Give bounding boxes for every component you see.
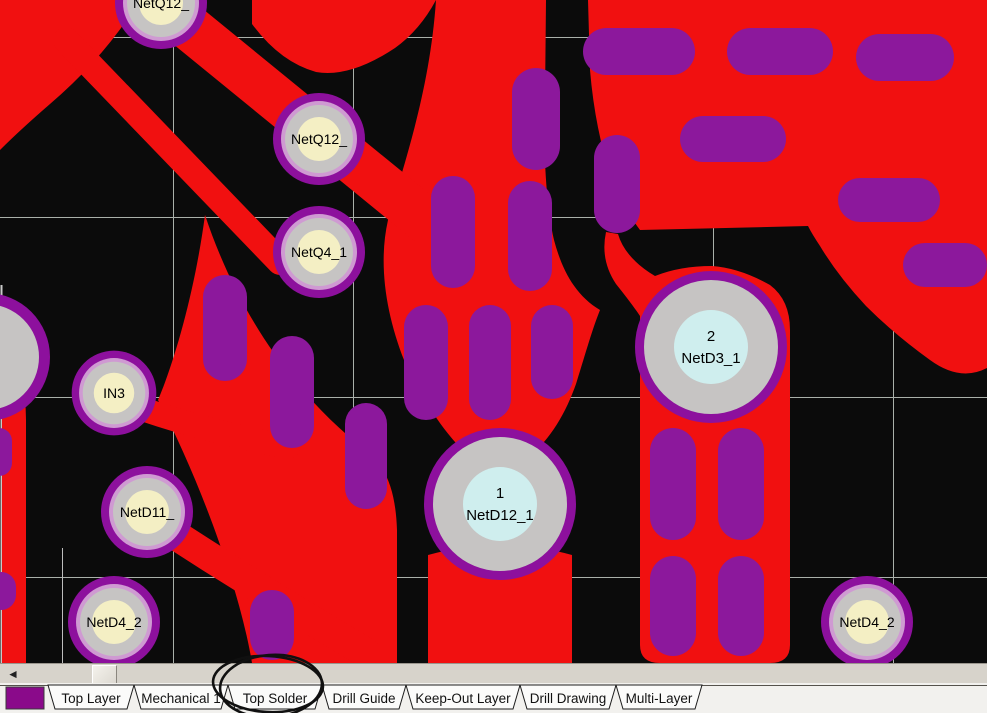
pad-net-label: NetQ12_ — [291, 131, 347, 147]
tab-label: Top Layer — [61, 691, 121, 706]
mask-pad-pill[interactable] — [345, 403, 387, 509]
pad-net-label: NetD12_1 — [466, 507, 534, 524]
tab-label: Keep-Out Layer — [415, 691, 511, 706]
mask-pad-pill[interactable] — [583, 28, 695, 75]
scrollbar-left-arrow-icon[interactable]: ◄ — [6, 667, 20, 681]
tab-top-layer[interactable]: Top Layer — [48, 685, 134, 709]
mask-pad-pill[interactable] — [856, 34, 954, 81]
tab-drill-guide[interactable]: Drill Guide — [322, 685, 406, 709]
pcb-editor-window: NetQ12_NetQ12_NetQ4_1IN3NetD11_NetD4_2Ne… — [0, 0, 987, 713]
mask-pad-pill[interactable] — [431, 176, 475, 288]
pad-hole — [463, 467, 537, 541]
mask-pad-pill[interactable] — [404, 305, 448, 420]
pad-NetD12_1[interactable]: 1NetD12_1 — [424, 428, 576, 580]
mask-pad-pill[interactable] — [727, 28, 833, 75]
layer-tabs: Top LayerMechanical 1Top SolderDrill Gui… — [0, 683, 987, 713]
tab-label: Drill Drawing — [530, 691, 607, 706]
active-layer-color-swatch[interactable] — [6, 687, 44, 709]
mask-pad-pill[interactable] — [838, 178, 940, 222]
tab-top-solder[interactable]: Top Solder — [228, 685, 322, 709]
pad-net-label: NetD11_ — [120, 504, 174, 520]
mask-pad-pill[interactable] — [650, 428, 696, 540]
tab-keep-out-layer[interactable]: Keep-Out Layer — [406, 685, 520, 709]
scrollbar-thumb[interactable] — [92, 665, 117, 685]
pad-NetQ4_1[interactable]: NetQ4_1 — [273, 206, 365, 298]
mask-pad-pill[interactable] — [469, 305, 511, 420]
pad-net-label: NetD3_1 — [681, 350, 740, 367]
pad-hole — [674, 310, 748, 384]
mask-pad-pill[interactable] — [250, 590, 294, 660]
tab-label: Multi-Layer — [626, 691, 693, 706]
mask-pad-pill[interactable] — [508, 181, 552, 291]
mask-pad-pill[interactable] — [203, 275, 247, 381]
pad-NetD11_[interactable]: NetD11_ — [101, 466, 193, 558]
tab-label: Top Solder — [243, 691, 308, 706]
pad-NetD3_1[interactable]: 2NetD3_1 — [635, 271, 787, 423]
mask-pad-pill[interactable] — [903, 243, 987, 287]
mask-pad-pill[interactable] — [650, 556, 696, 656]
tab-multi-layer[interactable]: Multi-Layer — [616, 685, 702, 709]
mask-pad-pill[interactable] — [531, 305, 573, 399]
mask-pad-pill[interactable] — [680, 116, 786, 162]
mask-pad-pill[interactable] — [0, 428, 12, 476]
layer-tab-bar: Top LayerMechanical 1Top SolderDrill Gui… — [0, 683, 987, 713]
horizontal-scrollbar[interactable]: ◄ — [0, 663, 987, 684]
pad-IN3[interactable]: IN3 — [72, 351, 157, 436]
tab-label: Drill Guide — [332, 691, 395, 706]
tab-drill-drawing[interactable]: Drill Drawing — [520, 685, 616, 709]
pad-net-label: NetD4_2 — [86, 614, 141, 630]
pad-NetQ12_[interactable]: NetQ12_ — [273, 93, 365, 185]
pad-net-label: IN3 — [103, 385, 125, 401]
tab-label: Mechanical 1 — [141, 691, 221, 706]
pad-net-label: NetQ12_ — [133, 0, 189, 11]
pad-number: 2 — [707, 328, 715, 345]
mask-pad-pill[interactable] — [594, 135, 640, 233]
pad-net-label: NetD4_2 — [839, 614, 894, 630]
pcb-layout-view: NetQ12_NetQ12_NetQ4_1IN3NetD11_NetD4_2Ne… — [0, 0, 987, 663]
mask-pad-pill[interactable] — [512, 68, 560, 170]
mask-pad-pill[interactable] — [270, 336, 314, 448]
tab-mechanical-1[interactable]: Mechanical 1 — [134, 685, 228, 709]
pcb-canvas[interactable]: NetQ12_NetQ12_NetQ4_1IN3NetD11_NetD4_2Ne… — [0, 0, 987, 663]
pad-net-label: NetQ4_1 — [291, 244, 347, 260]
pad-number: 1 — [496, 485, 504, 502]
mask-pad-pill[interactable] — [718, 556, 764, 656]
mask-pad-pill[interactable] — [718, 428, 764, 540]
